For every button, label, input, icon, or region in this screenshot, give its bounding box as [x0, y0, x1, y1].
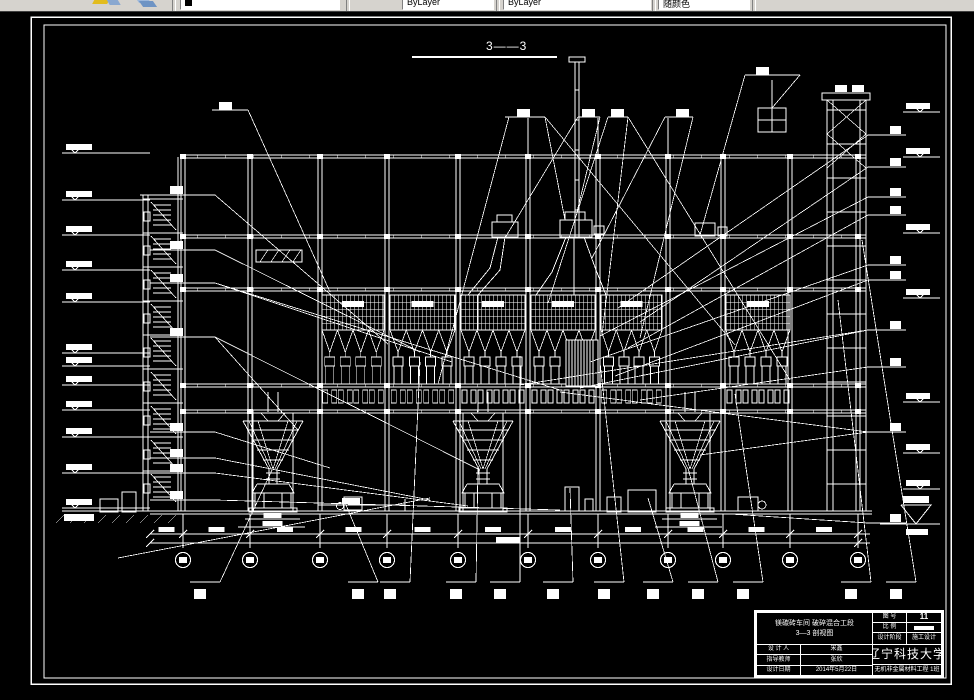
color-combo[interactable]: ByLayer — [402, 0, 494, 10]
match-properties-icon[interactable] — [92, 0, 128, 10]
toolbar-separator — [496, 0, 500, 11]
date-label: 设计日期 — [756, 665, 801, 676]
layer-combo[interactable] — [180, 0, 340, 10]
section-drawing: 3——3 — [0, 0, 974, 700]
class-name: 无机非金属材料工程 1班 — [872, 664, 942, 676]
cad-canvas[interactable]: 3——3 — [0, 0, 974, 700]
project-title-cell: 镁碳砖车间 破碎混合工段3—3 剖视图 — [756, 612, 873, 645]
section-view-title: 3——3 — [486, 39, 527, 53]
layers-icon[interactable] — [133, 0, 167, 10]
cad-toolbar: ByLayer ByLayer 随颜色 — [0, 0, 974, 12]
plotstyle-combo[interactable]: 随颜色 — [658, 0, 750, 10]
linetype-combo[interactable]: ByLayer — [503, 0, 651, 10]
sheet-outer-frame — [31, 17, 951, 684]
title-block: 镁碳砖车间 破碎混合工段3—3 剖视图 设 计 人 宋鑫 指导教师 张欣 设计日… — [754, 610, 944, 678]
toolbar-separator — [346, 0, 350, 11]
toolbar-separator — [652, 0, 656, 11]
university-name: 辽宁科技大学 — [872, 644, 942, 665]
sheet-inner-frame — [44, 25, 946, 678]
scale-value-bar — [914, 626, 934, 630]
date-value: 2014年5月22日 — [800, 665, 873, 676]
section-geometry — [56, 57, 940, 599]
toolbar-separator — [752, 0, 756, 11]
toolbar-separator — [172, 0, 176, 11]
